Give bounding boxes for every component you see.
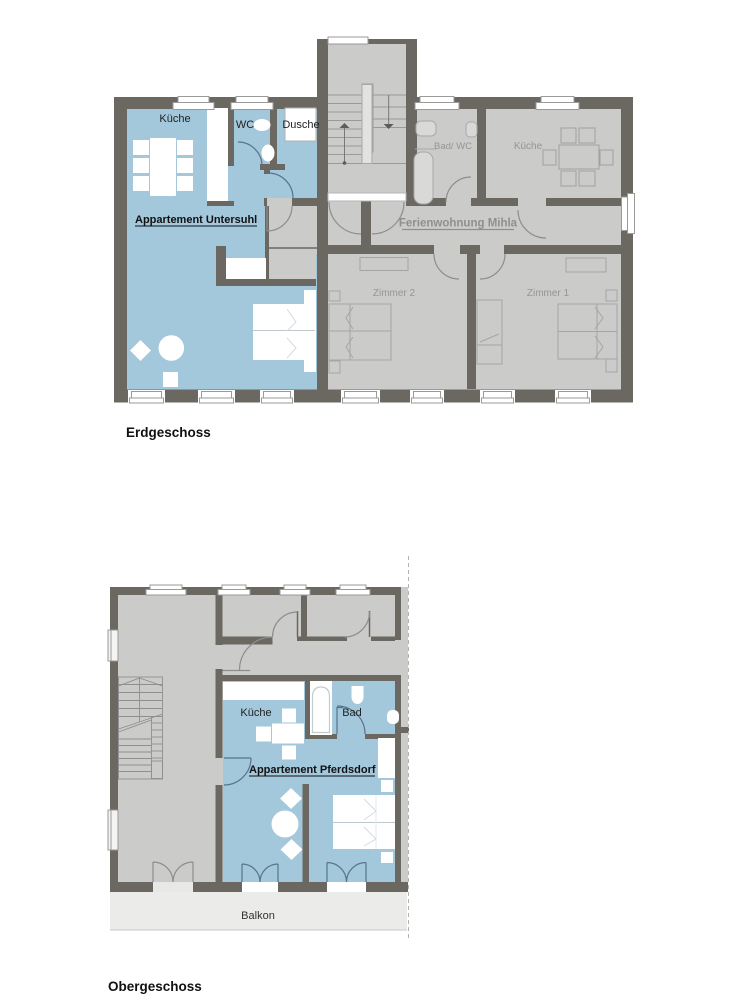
svg-text:Küche: Küche [159,113,190,125]
svg-text:Erdgeschoss: Erdgeschoss [126,425,211,440]
svg-text:Zimmer 2: Zimmer 2 [373,288,416,299]
svg-text:Bad/ WC: Bad/ WC [434,141,472,152]
svg-text:WC: WC [236,119,254,131]
svg-text:Appartement Pferdsdorf: Appartement Pferdsdorf [249,764,376,776]
svg-text:Küche: Küche [514,141,543,152]
svg-text:Zimmer 1: Zimmer 1 [527,288,570,299]
svg-text:Küche: Küche [240,707,271,719]
svg-text:Balkon: Balkon [241,910,275,922]
svg-text:Appartement Untersuhl: Appartement Untersuhl [135,214,257,226]
svg-text:Bad: Bad [342,707,362,719]
svg-text:Ferienwohnung Mihla: Ferienwohnung Mihla [399,218,518,230]
svg-text:Obergeschoss: Obergeschoss [108,979,202,994]
svg-text:Dusche: Dusche [282,119,319,131]
